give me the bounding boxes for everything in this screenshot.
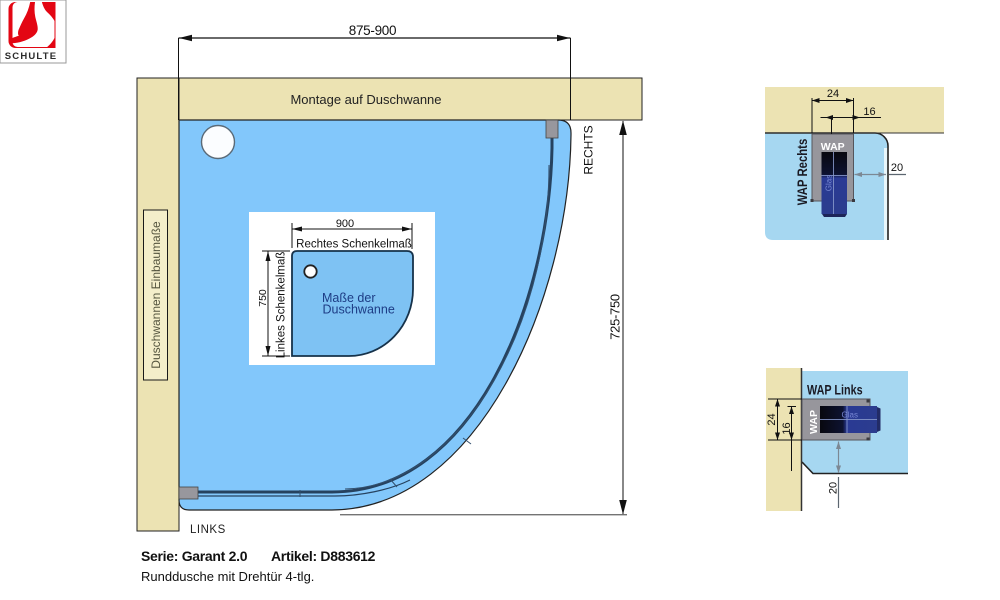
svg-text:LINKS: LINKS — [190, 524, 226, 536]
svg-text:16: 16 — [863, 106, 875, 118]
svg-text:Artikel: D883612: Artikel: D883612 — [271, 548, 376, 564]
svg-text:SCHULTE: SCHULTE — [5, 51, 58, 62]
svg-text:RECHTS: RECHTS — [582, 125, 596, 174]
svg-text:16: 16 — [781, 422, 793, 434]
svg-text:WAP: WAP — [808, 410, 820, 434]
svg-text:WAP: WAP — [821, 141, 845, 153]
svg-text:Duschwannen Einbaumaße: Duschwannen Einbaumaße — [149, 221, 163, 369]
svg-text:20: 20 — [828, 482, 840, 494]
svg-text:Linkes Schenkelmaß: Linkes Schenkelmaß — [276, 252, 288, 359]
svg-text:24: 24 — [827, 88, 839, 100]
svg-text:Montage auf Duschwanne: Montage auf Duschwanne — [290, 92, 441, 107]
svg-text:Serie: Garant 2.0: Serie: Garant 2.0 — [141, 548, 248, 564]
svg-text:Glas: Glas — [825, 175, 834, 191]
svg-text:Duschwanne: Duschwanne — [323, 303, 395, 317]
svg-text:900: 900 — [336, 218, 354, 230]
svg-text:Rechtes Schenkelmaß: Rechtes Schenkelmaß — [296, 239, 412, 251]
svg-text:WAP Links: WAP Links — [807, 382, 863, 397]
svg-text:20: 20 — [891, 162, 903, 174]
svg-text:725-750: 725-750 — [608, 294, 623, 340]
svg-text:Glas: Glas — [842, 411, 858, 420]
svg-text:24: 24 — [766, 413, 778, 425]
svg-text:750: 750 — [257, 289, 269, 307]
svg-text:WAP Rechts: WAP Rechts — [795, 139, 810, 206]
svg-text:875-900: 875-900 — [349, 23, 396, 38]
svg-text:Runddusche mit Drehtür 4-tlg.: Runddusche mit Drehtür 4-tlg. — [141, 569, 314, 584]
